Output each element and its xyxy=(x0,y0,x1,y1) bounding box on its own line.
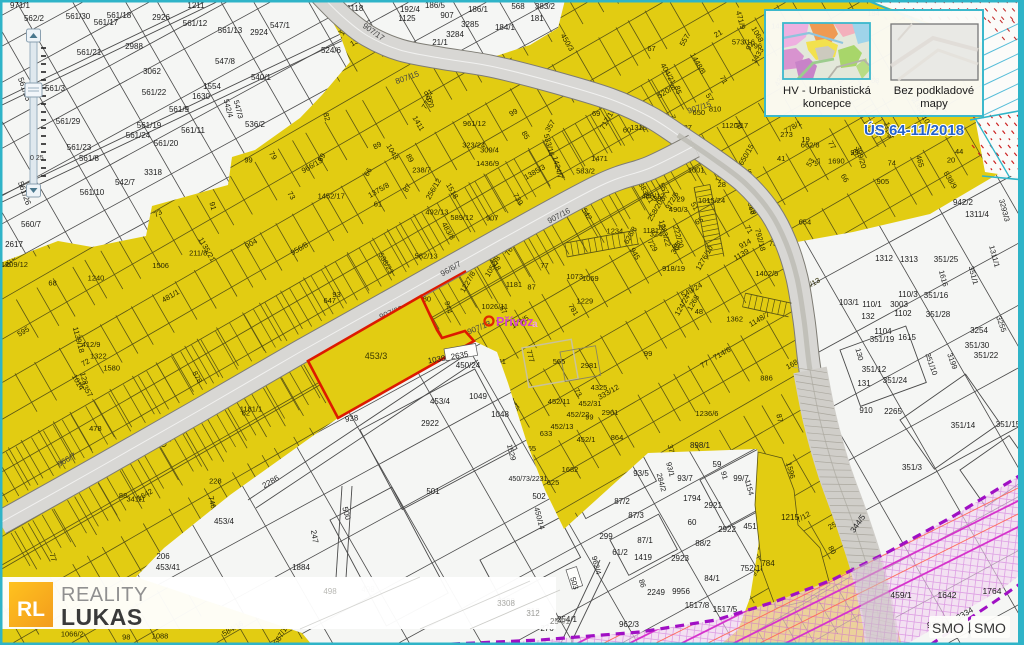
svg-text:1313: 1313 xyxy=(900,255,918,264)
svg-text:1402/5: 1402/5 xyxy=(755,269,778,278)
svg-text:451: 451 xyxy=(743,522,757,531)
svg-text:LUKAS: LUKAS xyxy=(61,604,143,630)
svg-text:561/20: 561/20 xyxy=(154,139,179,148)
svg-text:385: 385 xyxy=(653,194,666,203)
svg-text:1615: 1615 xyxy=(898,333,916,342)
svg-text:98: 98 xyxy=(122,633,130,642)
svg-text:1229: 1229 xyxy=(577,296,594,305)
svg-text:452/22: 452/22 xyxy=(567,410,590,419)
svg-text:88/2: 88/2 xyxy=(695,539,711,548)
svg-text:4325: 4325 xyxy=(591,383,608,392)
svg-text:1690: 1690 xyxy=(828,156,845,165)
svg-text:0 25: 0 25 xyxy=(30,155,44,162)
svg-text:452/1: 452/1 xyxy=(577,435,596,444)
svg-text:573/16: 573/16 xyxy=(732,37,755,46)
svg-text:784: 784 xyxy=(761,559,775,568)
svg-text:131: 131 xyxy=(857,379,871,388)
svg-text:2617: 2617 xyxy=(5,240,23,249)
svg-text:540/1: 540/1 xyxy=(251,73,272,82)
svg-text:1554: 1554 xyxy=(203,82,221,91)
svg-text:453/3: 453/3 xyxy=(365,351,388,361)
svg-text:1322: 1322 xyxy=(90,351,107,360)
svg-text:459/1: 459/1 xyxy=(890,590,912,600)
svg-text:560/7: 560/7 xyxy=(21,220,42,229)
svg-text:1001: 1001 xyxy=(688,165,705,174)
svg-text:907: 907 xyxy=(486,213,499,222)
svg-text:254/1: 254/1 xyxy=(550,617,571,626)
svg-text:542/7: 542/7 xyxy=(115,178,136,187)
svg-text:20: 20 xyxy=(947,155,955,164)
svg-text:87/1: 87/1 xyxy=(637,536,653,545)
svg-text:1419: 1419 xyxy=(634,553,652,562)
svg-text:3308: 3308 xyxy=(497,599,515,608)
svg-text:19: 19 xyxy=(801,135,809,144)
svg-text:1794: 1794 xyxy=(683,494,701,503)
svg-text:907: 907 xyxy=(440,11,454,20)
svg-text:568: 568 xyxy=(511,2,525,11)
svg-text:561/17: 561/17 xyxy=(94,18,119,27)
svg-text:1181: 1181 xyxy=(506,280,522,289)
svg-text:93: 93 xyxy=(332,290,340,299)
svg-text:29: 29 xyxy=(677,194,685,203)
svg-text:99: 99 xyxy=(244,156,252,165)
svg-text:351/24: 351/24 xyxy=(883,376,908,385)
svg-text:87: 87 xyxy=(527,282,535,291)
svg-text:351/12: 351/12 xyxy=(862,365,887,374)
svg-text:905: 905 xyxy=(877,177,890,186)
svg-text:93/7: 93/7 xyxy=(677,474,693,483)
svg-text:1884: 1884 xyxy=(292,563,310,572)
svg-text:192/4: 192/4 xyxy=(400,5,421,14)
svg-text:561/11: 561/11 xyxy=(181,126,205,135)
svg-text:547/8: 547/8 xyxy=(215,57,236,66)
svg-text:501: 501 xyxy=(426,487,440,496)
svg-text:3254: 3254 xyxy=(970,326,988,335)
svg-text:REALITY: REALITY xyxy=(61,584,148,606)
svg-text:2923: 2923 xyxy=(671,554,689,563)
svg-text:186/1: 186/1 xyxy=(468,5,489,14)
svg-text:59: 59 xyxy=(713,460,722,469)
svg-text:ÚS 64-11/2018: ÚS 64-11/2018 xyxy=(864,121,964,139)
svg-text:HV - Urbanistická: HV - Urbanistická xyxy=(783,85,872,97)
svg-text:323/24: 323/24 xyxy=(462,140,485,149)
svg-text:589/12: 589/12 xyxy=(450,213,473,222)
svg-text:1088: 1088 xyxy=(152,632,169,641)
svg-text:1471: 1471 xyxy=(591,154,608,163)
svg-text:238/7: 238/7 xyxy=(412,166,431,175)
svg-text:351/14: 351/14 xyxy=(951,421,976,430)
svg-text:502: 502 xyxy=(532,492,546,501)
svg-text:41: 41 xyxy=(777,154,785,163)
svg-text:44: 44 xyxy=(955,147,963,156)
svg-text:547/1: 547/1 xyxy=(270,21,291,30)
svg-text:koncepce: koncepce xyxy=(803,98,851,110)
svg-text:1026/11: 1026/11 xyxy=(482,302,509,311)
svg-text:1517/5: 1517/5 xyxy=(713,605,738,614)
svg-text:1240: 1240 xyxy=(88,273,105,282)
svg-text:2265: 2265 xyxy=(884,407,902,416)
svg-text:582/13: 582/13 xyxy=(415,252,438,261)
svg-text:453/41: 453/41 xyxy=(156,563,181,572)
svg-text:1181/1: 1181/1 xyxy=(240,404,262,413)
svg-text:962/3: 962/3 xyxy=(619,620,640,629)
svg-text:110/3: 110/3 xyxy=(898,290,918,299)
svg-text:2926: 2926 xyxy=(152,13,170,22)
svg-text:68: 68 xyxy=(48,278,56,287)
svg-text:450/24: 450/24 xyxy=(456,361,481,370)
svg-text:1049: 1049 xyxy=(469,392,487,401)
svg-text:583/2: 583/2 xyxy=(576,166,595,175)
svg-text:971/1: 971/1 xyxy=(10,1,31,10)
svg-text:2961: 2961 xyxy=(602,408,619,417)
svg-text:492/13: 492/13 xyxy=(425,207,448,216)
svg-text:524/6: 524/6 xyxy=(321,46,342,55)
svg-text:2981: 2981 xyxy=(581,361,598,370)
svg-text:351/28: 351/28 xyxy=(926,310,951,319)
svg-text:864: 864 xyxy=(611,433,624,442)
svg-text:452/11: 452/11 xyxy=(548,397,570,406)
svg-text:|: | xyxy=(968,620,971,634)
svg-text:886: 886 xyxy=(760,374,773,383)
svg-text:351/25: 351/25 xyxy=(934,255,959,264)
svg-text:561/22: 561/22 xyxy=(142,88,167,97)
svg-text:561/3: 561/3 xyxy=(45,84,66,93)
svg-text:1517/8: 1517/8 xyxy=(685,601,710,610)
svg-text:mapy: mapy xyxy=(920,98,948,110)
svg-text:67: 67 xyxy=(647,44,655,53)
svg-text:561/12: 561/12 xyxy=(183,19,208,28)
svg-text:1452/17: 1452/17 xyxy=(318,192,345,201)
svg-text:99: 99 xyxy=(644,349,652,358)
svg-text:412/9: 412/9 xyxy=(82,340,101,349)
svg-text:184/1: 184/1 xyxy=(495,23,516,32)
svg-text:562/2: 562/2 xyxy=(24,14,45,23)
svg-text:351/16: 351/16 xyxy=(924,291,949,300)
svg-text:1764: 1764 xyxy=(983,586,1002,596)
svg-text:341/1: 341/1 xyxy=(127,495,146,504)
svg-text:450/73/2231: 450/73/2231 xyxy=(509,476,548,483)
svg-text:2922: 2922 xyxy=(421,419,439,428)
svg-text:1642: 1642 xyxy=(938,590,957,600)
svg-text:a: a xyxy=(532,319,538,330)
svg-text:77: 77 xyxy=(540,261,548,270)
svg-text:351/15: 351/15 xyxy=(996,420,1021,429)
svg-text:452/13: 452/13 xyxy=(551,422,574,431)
svg-text:1436/9: 1436/9 xyxy=(476,159,499,168)
svg-text:351/3: 351/3 xyxy=(902,463,923,472)
svg-text:1069: 1069 xyxy=(582,274,599,283)
svg-text:87/3: 87/3 xyxy=(628,511,644,520)
svg-text:565: 565 xyxy=(553,357,566,366)
svg-text:61: 61 xyxy=(374,200,382,209)
svg-text:561/30: 561/30 xyxy=(66,12,91,21)
svg-text:1102: 1102 xyxy=(894,309,912,318)
svg-text:1506: 1506 xyxy=(152,261,169,270)
svg-text:1311/4: 1311/4 xyxy=(965,210,989,219)
svg-text:1630: 1630 xyxy=(192,92,210,101)
svg-text:181: 181 xyxy=(530,14,544,23)
svg-text:561/21: 561/21 xyxy=(77,48,102,57)
svg-text:1215: 1215 xyxy=(781,513,799,522)
svg-text:1312: 1312 xyxy=(875,254,893,263)
svg-text:561/19: 561/19 xyxy=(137,121,162,130)
svg-text:3003: 3003 xyxy=(890,300,908,309)
svg-text:918/19: 918/19 xyxy=(662,264,685,273)
svg-text:1236/6: 1236/6 xyxy=(696,409,719,418)
svg-text:490/3: 490/3 xyxy=(669,205,688,214)
svg-text:3284: 3284 xyxy=(446,30,464,39)
svg-text:453/4: 453/4 xyxy=(430,397,451,406)
svg-text:1015/24: 1015/24 xyxy=(698,196,725,205)
svg-text:351/30: 351/30 xyxy=(965,341,990,350)
svg-text:898/1: 898/1 xyxy=(690,441,711,450)
svg-text:561/10: 561/10 xyxy=(80,188,105,197)
svg-text:351/19: 351/19 xyxy=(870,335,895,344)
svg-text:74: 74 xyxy=(888,159,896,168)
svg-text:1125: 1125 xyxy=(398,14,416,23)
svg-text:654: 654 xyxy=(799,217,812,226)
svg-text:942/2: 942/2 xyxy=(953,198,974,207)
svg-text:561/29: 561/29 xyxy=(56,117,81,126)
svg-text:561/9: 561/9 xyxy=(169,105,190,114)
svg-text:132: 132 xyxy=(861,312,875,321)
svg-text:910: 910 xyxy=(859,406,873,415)
svg-text:RL: RL xyxy=(17,598,45,621)
svg-text:1066/2: 1066/2 xyxy=(61,629,84,638)
svg-text:87/2: 87/2 xyxy=(614,497,630,506)
svg-text:1181: 1181 xyxy=(643,226,659,235)
svg-text:206: 206 xyxy=(156,552,170,561)
svg-text:228: 228 xyxy=(209,477,222,486)
svg-text:Bez podkladové: Bez podkladové xyxy=(894,85,974,97)
svg-text:478: 478 xyxy=(89,424,102,433)
svg-text:536/2: 536/2 xyxy=(245,120,266,129)
svg-text:3285: 3285 xyxy=(461,20,479,29)
svg-text:2922: 2922 xyxy=(718,525,736,534)
svg-text:938: 938 xyxy=(344,413,359,424)
svg-text:561/24: 561/24 xyxy=(126,131,151,140)
svg-text:1362: 1362 xyxy=(726,314,743,323)
svg-text:211/8: 211/8 xyxy=(189,249,207,258)
svg-text:452/31: 452/31 xyxy=(579,399,602,408)
svg-text:SMO: SMO xyxy=(974,620,1006,636)
svg-text:561/13: 561/13 xyxy=(218,26,243,35)
svg-text:69: 69 xyxy=(592,109,600,118)
svg-text:561/8: 561/8 xyxy=(79,154,100,163)
svg-text:Přívoz: Přívoz xyxy=(496,315,534,329)
svg-text:93/5: 93/5 xyxy=(633,469,649,478)
svg-text:961/12: 961/12 xyxy=(463,119,486,128)
svg-text:48: 48 xyxy=(695,307,703,316)
svg-text:2924: 2924 xyxy=(250,28,268,37)
svg-text:625: 625 xyxy=(547,478,560,487)
svg-text:312: 312 xyxy=(526,609,540,618)
svg-text:1682: 1682 xyxy=(562,465,579,474)
svg-text:2988: 2988 xyxy=(125,42,143,51)
svg-text:351/22: 351/22 xyxy=(974,351,999,360)
svg-text:1073: 1073 xyxy=(566,272,583,281)
svg-text:103/1: 103/1 xyxy=(839,298,860,307)
svg-text:60: 60 xyxy=(688,518,697,527)
svg-text:561/23: 561/23 xyxy=(67,143,92,152)
svg-text:383/2: 383/2 xyxy=(535,2,556,11)
svg-text:SMO: SMO xyxy=(932,620,964,636)
svg-text:1209/12: 1209/12 xyxy=(1,260,28,269)
svg-text:1580: 1580 xyxy=(103,364,120,373)
svg-text:498: 498 xyxy=(323,587,337,596)
svg-text:633: 633 xyxy=(540,429,553,438)
svg-text:453/4: 453/4 xyxy=(214,517,235,526)
svg-text:3318: 3318 xyxy=(144,168,162,177)
svg-text:110/1: 110/1 xyxy=(862,300,882,309)
svg-text:3062: 3062 xyxy=(143,67,161,76)
